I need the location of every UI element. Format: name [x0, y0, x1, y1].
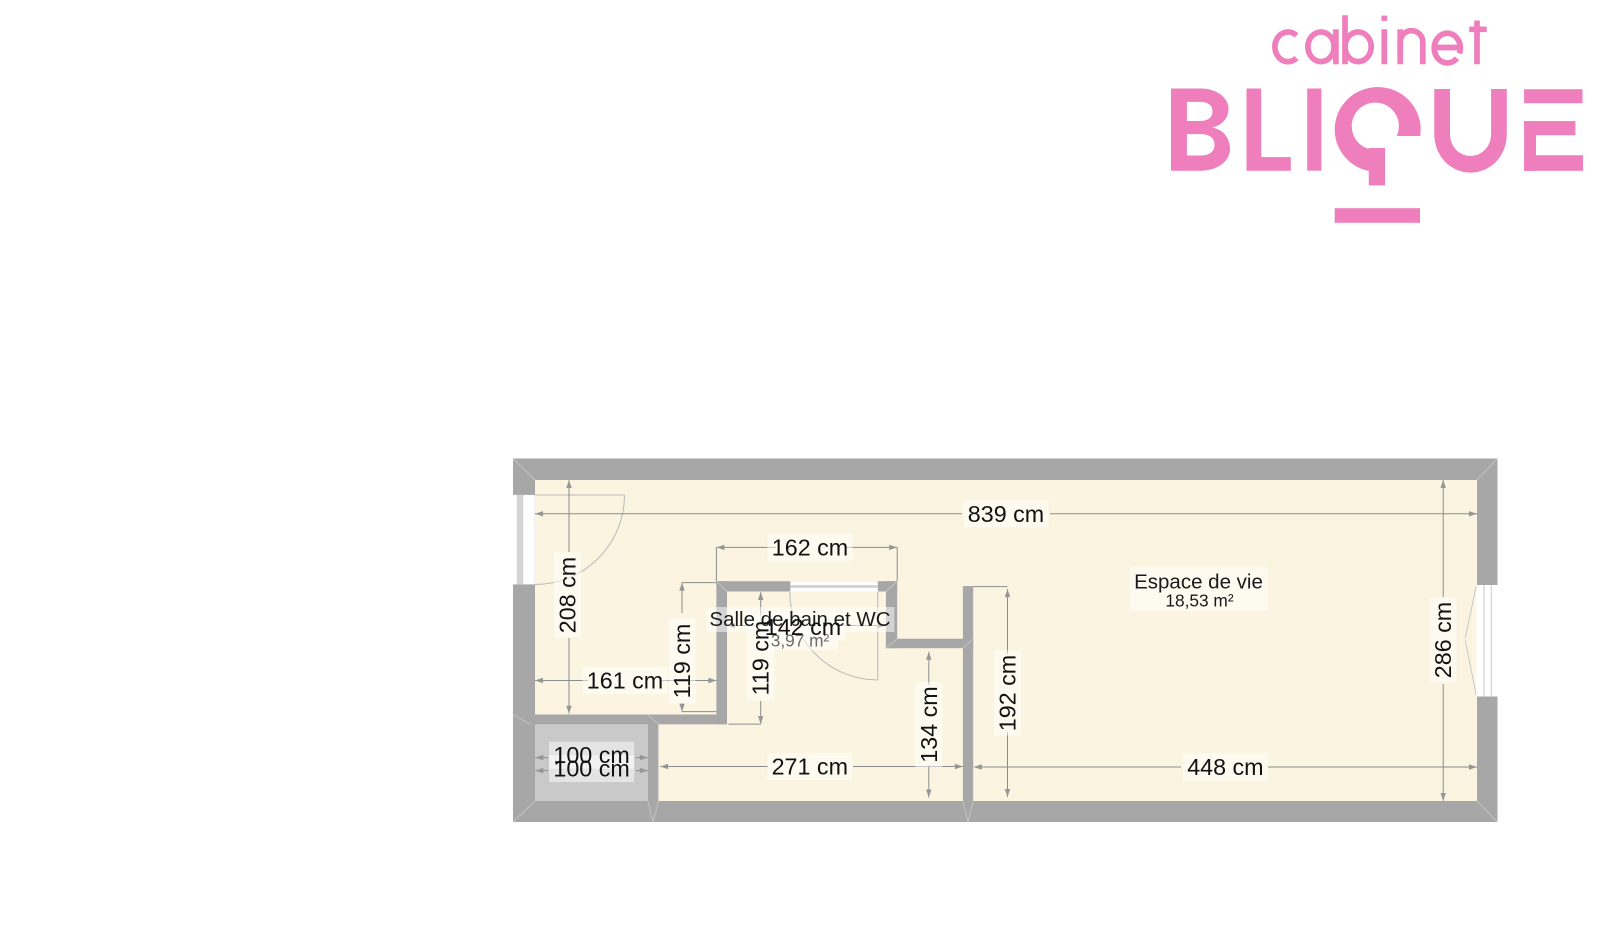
svg-text:119 cm: 119 cm	[669, 624, 695, 699]
svg-text:271 cm: 271 cm	[772, 754, 848, 780]
svg-text:192 cm: 192 cm	[995, 655, 1021, 731]
svg-text:208 cm: 208 cm	[555, 557, 581, 633]
svg-text:134 cm: 134 cm	[916, 686, 942, 762]
svg-text:161 cm: 161 cm	[587, 668, 663, 694]
svg-text:18,53 m²: 18,53 m²	[1165, 591, 1233, 611]
svg-text:839 cm: 839 cm	[968, 501, 1044, 527]
svg-text:142 cm: 142 cm	[765, 614, 841, 640]
svg-text:162 cm: 162 cm	[772, 535, 848, 561]
svg-text:448 cm: 448 cm	[1187, 754, 1263, 780]
svg-text:286 cm: 286 cm	[1430, 602, 1456, 678]
svg-text:100 cm: 100 cm	[553, 756, 629, 782]
